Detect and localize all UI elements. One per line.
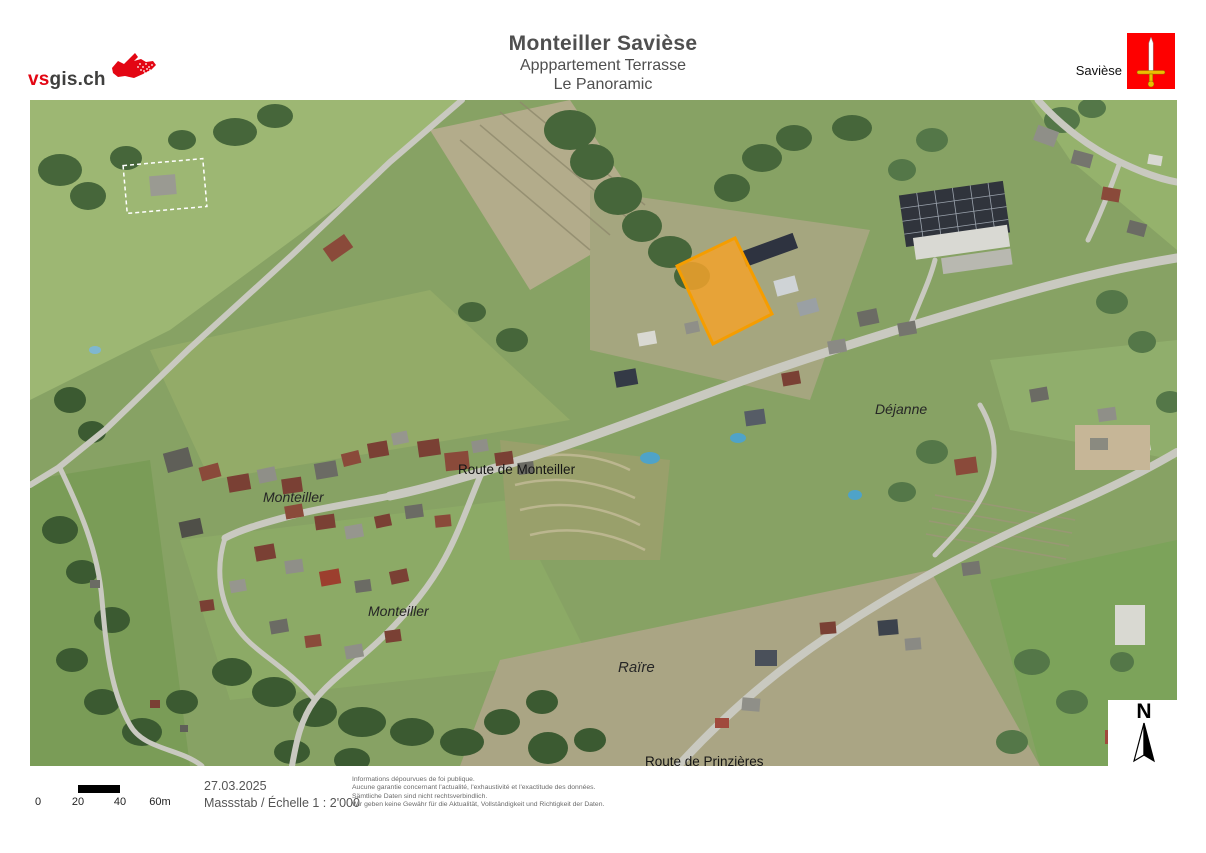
disclaimer-line-1: Informations dépourvues de foi publique. [352,776,604,784]
north-label: N [1136,701,1151,722]
scale-bar [78,785,120,793]
page-subtitle-1: Apppartement Terrasse [0,57,1206,75]
north-arrow-icon [1132,722,1156,769]
page-subtitle-2: Le Panoramic [0,76,1206,94]
north-arrow-box: N [1108,700,1180,766]
print-page: vsgis.ch Monteiller Savièse Apppartement… [0,0,1206,853]
scale-tick-20: 20 [72,796,84,808]
scale-tick-60: 60m [149,796,170,808]
title-block: Monteiller Savièse Apppartement Terrasse… [0,32,1206,94]
saviese-coat-of-arms-icon [1127,33,1175,94]
page-title: Monteiller Savièse [0,32,1206,56]
map-canvas: Route de Monteiller Monteiller Déjanne M… [30,100,1177,766]
municipality-label: Savièse [1076,63,1122,78]
scale-tick-0: 0 [35,796,41,808]
scale-label: Massstab / Échelle 1 : 2'000 [204,796,360,810]
aerial-imagery [30,100,1177,766]
scale-tick-40: 40 [114,796,126,808]
print-date: 27.03.2025 [204,779,267,793]
disclaimer-text: Informations dépourvues de foi publique.… [352,776,604,810]
disclaimer-line-3: Sämtliche Daten sind nicht rechtsverbind… [352,793,604,801]
disclaimer-line-2: Aucune garantie concernant l'actualité, … [352,784,604,792]
disclaimer-line-4: Wir geben keine Gewähr für die Aktualitä… [352,801,604,809]
